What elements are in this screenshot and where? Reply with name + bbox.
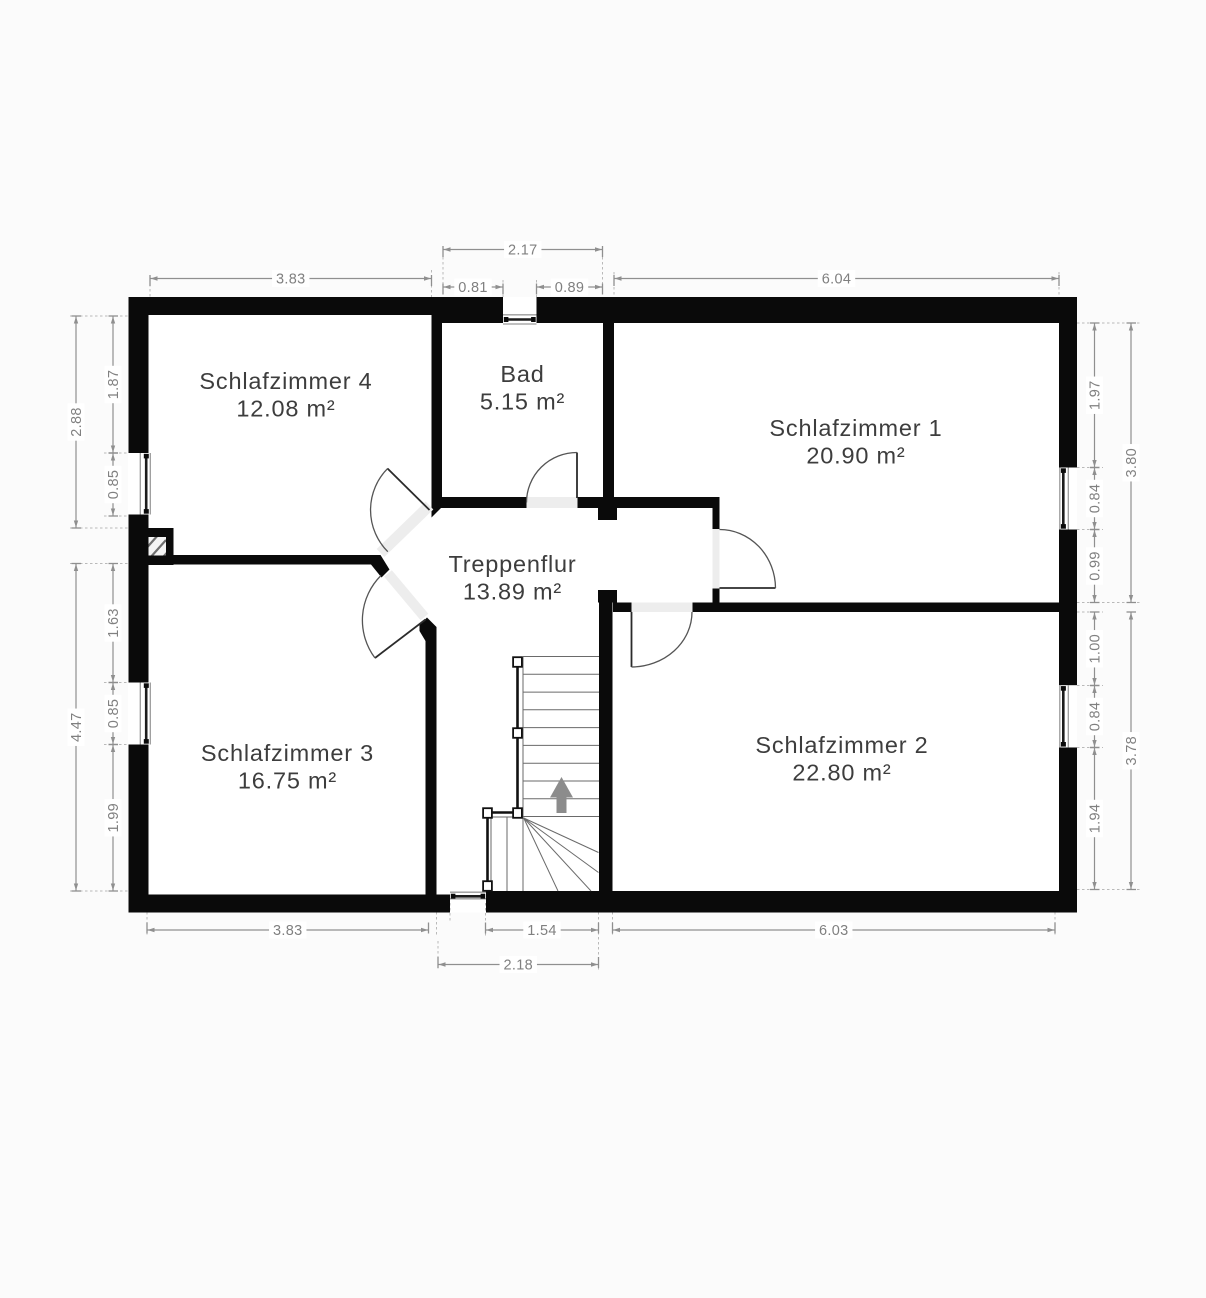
svg-text:Schlafzimmer 3: Schlafzimmer 3 (201, 740, 374, 766)
svg-text:1.63: 1.63 (106, 608, 122, 637)
svg-text:6.04: 6.04 (822, 272, 851, 288)
svg-text:2.88: 2.88 (69, 407, 85, 436)
svg-text:4.47: 4.47 (69, 713, 85, 742)
svg-text:0.89: 0.89 (555, 280, 584, 296)
svg-text:2.17: 2.17 (508, 243, 537, 259)
svg-text:20.90 m²: 20.90 m² (806, 443, 905, 469)
svg-text:1.99: 1.99 (106, 803, 122, 832)
svg-text:Schlafzimmer 2: Schlafzimmer 2 (755, 732, 928, 758)
svg-text:0.99: 0.99 (1088, 551, 1104, 580)
svg-text:Schlafzimmer 4: Schlafzimmer 4 (199, 368, 372, 394)
svg-text:12.08 m²: 12.08 m² (236, 396, 335, 422)
svg-text:3.83: 3.83 (276, 272, 305, 288)
svg-text:0.84: 0.84 (1088, 702, 1104, 731)
svg-text:6.03: 6.03 (819, 923, 848, 939)
svg-text:1.87: 1.87 (106, 370, 122, 399)
svg-text:3.78: 3.78 (1124, 736, 1140, 765)
svg-text:13.89 m²: 13.89 m² (463, 579, 562, 605)
svg-text:3.80: 3.80 (1124, 448, 1140, 477)
svg-text:1.00: 1.00 (1088, 634, 1104, 663)
svg-text:16.75 m²: 16.75 m² (238, 768, 337, 794)
svg-text:5.15 m²: 5.15 m² (480, 389, 565, 415)
svg-text:22.80 m²: 22.80 m² (792, 760, 891, 786)
svg-text:0.85: 0.85 (106, 470, 122, 499)
svg-text:Bad: Bad (500, 361, 544, 387)
svg-text:Treppenflur: Treppenflur (448, 551, 576, 577)
svg-text:2.18: 2.18 (504, 958, 533, 974)
svg-text:0.84: 0.84 (1088, 484, 1104, 513)
svg-text:0.81: 0.81 (458, 280, 487, 296)
svg-text:1.97: 1.97 (1088, 381, 1104, 410)
svg-text:0.85: 0.85 (106, 699, 122, 728)
svg-text:1.94: 1.94 (1088, 804, 1104, 833)
svg-text:Schlafzimmer 1: Schlafzimmer 1 (769, 415, 942, 441)
svg-text:3.83: 3.83 (273, 923, 302, 939)
svg-text:1.54: 1.54 (527, 923, 556, 939)
